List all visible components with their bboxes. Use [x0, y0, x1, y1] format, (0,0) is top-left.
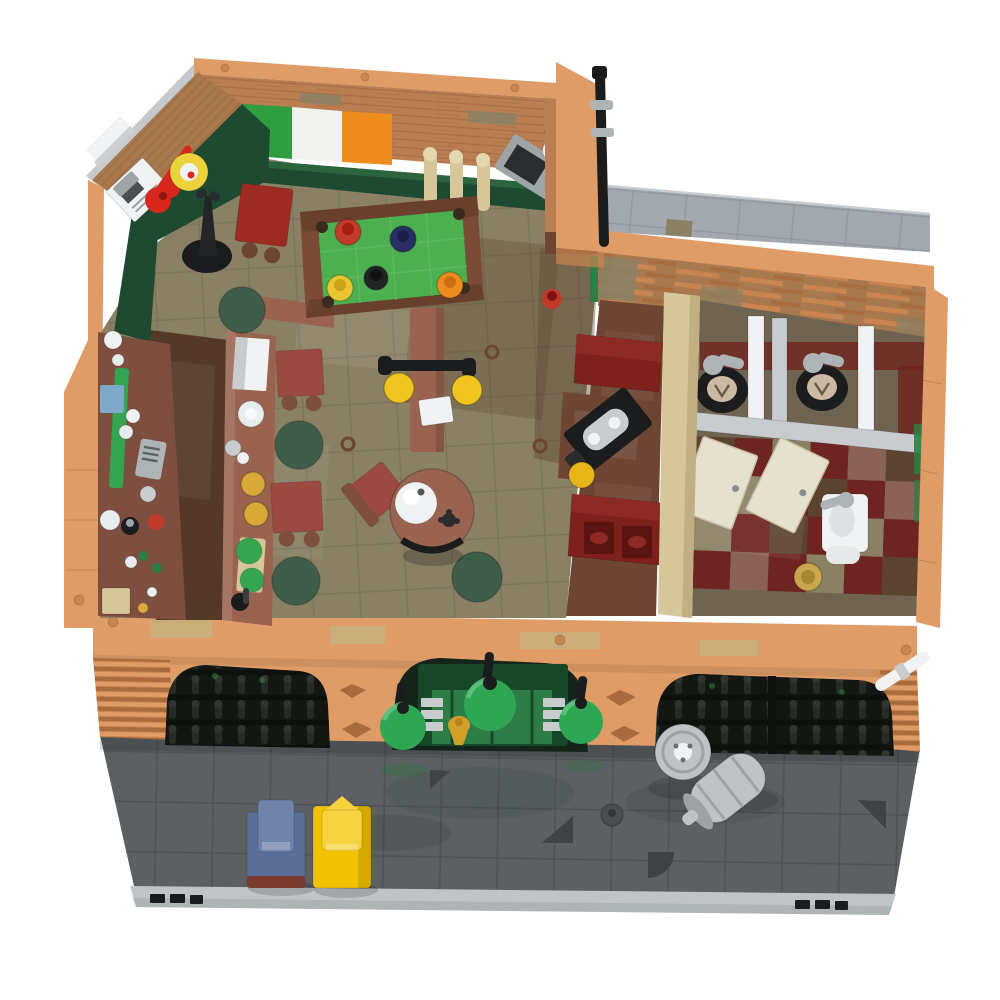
bottle-cap-white	[104, 331, 122, 349]
car-mudguard	[247, 876, 305, 888]
window-pane	[421, 698, 443, 707]
keg-hole	[681, 758, 686, 763]
green-bottle	[138, 551, 148, 561]
window-pane	[543, 698, 565, 707]
window-pane	[421, 710, 443, 719]
red-tin	[148, 514, 164, 530]
napkin-stack	[418, 396, 453, 426]
ball-stud	[444, 276, 456, 288]
yellow-jar	[138, 603, 148, 613]
keg-upright: Upright beer keg	[655, 724, 711, 780]
toilet: Toilet	[796, 351, 848, 411]
vent	[815, 900, 830, 909]
pipe-elbow	[592, 66, 607, 79]
globe-stud	[418, 489, 425, 496]
ball-stud	[342, 223, 354, 235]
vent	[835, 901, 848, 910]
facade: Brick street facade with three arches Ar…	[93, 612, 933, 756]
vent	[795, 900, 810, 909]
bottle-cap-white	[126, 409, 140, 423]
vent	[170, 894, 185, 903]
basin	[829, 503, 855, 537]
green-plate	[240, 568, 264, 592]
booth-bench-upper: Snug room with red booths	[574, 334, 662, 392]
pendant-lamp	[452, 375, 482, 405]
pendant-lamp	[384, 373, 414, 403]
bottle-clear	[125, 556, 137, 568]
table-detail	[446, 509, 452, 515]
drain-center	[801, 570, 815, 584]
bar-stool	[272, 557, 320, 605]
roof-olive-tile	[665, 219, 692, 237]
ball-stud	[397, 230, 409, 242]
parked-cars: Blue car Yellow car	[247, 796, 378, 898]
glass-rim	[245, 408, 257, 420]
napkin-dispenser	[232, 337, 270, 391]
beer-mug	[241, 472, 265, 496]
guitar-soundhole	[159, 192, 167, 200]
lamp-shadow	[564, 760, 606, 772]
tap-cap	[476, 153, 490, 167]
window-mullion	[768, 676, 776, 754]
table-detail	[454, 518, 460, 524]
ball-stud	[370, 269, 382, 281]
stall-divider	[772, 318, 787, 436]
stud	[361, 73, 369, 81]
flag-orange-stripe	[342, 111, 392, 165]
floor-tile	[883, 519, 922, 558]
booth-bench-lower	[568, 494, 672, 566]
beer-mug	[244, 502, 268, 526]
lattice-grille	[165, 665, 330, 748]
toilet: Toilet	[696, 353, 748, 413]
manhole-hole	[608, 809, 616, 817]
pool-table: Pool table with balls	[300, 196, 484, 318]
pillar-shade	[436, 308, 444, 452]
keg-hole	[688, 744, 693, 749]
can	[140, 486, 156, 502]
floor-tile	[881, 557, 920, 596]
extinguisher-top	[547, 291, 557, 301]
panel-medallion	[590, 532, 608, 544]
lamp-bar	[384, 360, 472, 371]
blue-box	[100, 385, 124, 413]
stud	[221, 64, 229, 72]
pub-room: Pub main room Irish flag on brick wall	[92, 58, 604, 626]
glass-glint	[709, 683, 715, 689]
lego-pub-render: LEGO modular Irish pub — top-down interi…	[0, 0, 1000, 1000]
bottle-clear	[147, 587, 157, 597]
coping-tile	[150, 620, 212, 638]
tile-divider-wall	[748, 316, 764, 432]
car-yellow: Yellow car	[313, 796, 371, 888]
table-center	[442, 513, 456, 527]
flag-white-stripe	[292, 107, 342, 162]
coping-tile	[700, 640, 758, 656]
tile-divider-wall	[858, 326, 874, 430]
glass-glint	[212, 673, 218, 679]
vent	[190, 895, 203, 904]
bottle-cap	[126, 519, 134, 527]
pipe-clamp	[591, 128, 614, 137]
pipe-clamp	[590, 100, 613, 110]
glass-glint	[839, 689, 845, 695]
bottle-clear	[112, 354, 124, 366]
stud	[511, 84, 519, 92]
pocket	[316, 221, 328, 233]
dartboard: Dartboard	[170, 153, 208, 191]
faucet	[838, 492, 854, 508]
arch-window-left: Arched lattice window	[165, 665, 330, 748]
panel-medallion	[628, 536, 646, 548]
stud	[74, 595, 84, 605]
windshield	[262, 842, 290, 850]
bathroom: Restroom with two stalls	[677, 300, 932, 616]
keg-hole	[674, 744, 679, 749]
car-blue: Blue car	[247, 800, 305, 888]
pump-lever	[243, 588, 249, 604]
tap-cap	[449, 150, 463, 164]
small-bottle	[237, 452, 249, 464]
floor-tile	[692, 550, 731, 589]
lamp-scroll	[462, 358, 476, 377]
stud	[108, 617, 118, 627]
ball-stud	[334, 279, 346, 291]
lamp-scroll	[378, 356, 392, 375]
pedestal	[826, 546, 860, 564]
green-bottle	[152, 563, 162, 573]
tan-crate	[102, 588, 130, 614]
floor-tile	[730, 552, 769, 591]
brick-pier-left	[93, 658, 172, 740]
bottle-clear	[119, 425, 133, 439]
windshield	[326, 844, 358, 851]
lamp-shadow	[381, 763, 429, 777]
table-detail	[438, 517, 444, 523]
stud	[901, 645, 911, 655]
tap-cap	[423, 147, 437, 161]
green-plate	[236, 538, 262, 564]
bar-stool	[219, 287, 265, 333]
glass-glint	[259, 677, 265, 683]
coping-tile	[330, 626, 385, 644]
street: Grey street with parked cars Street drai…	[100, 735, 920, 915]
bottle-clear-large	[100, 510, 120, 530]
bar-stool	[275, 421, 323, 469]
pocket	[453, 208, 465, 220]
render-canvas: LEGO modular Irish pub — top-down interi…	[0, 0, 1000, 1000]
vent	[150, 894, 165, 903]
globe-highlight	[403, 489, 419, 505]
stud	[555, 635, 565, 645]
